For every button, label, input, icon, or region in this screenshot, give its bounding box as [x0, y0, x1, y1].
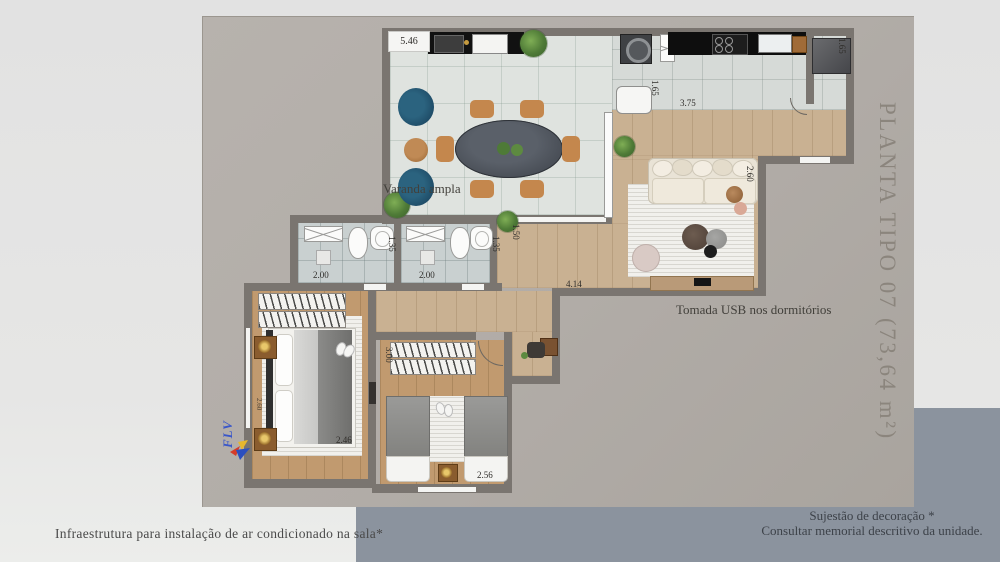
plant-icon — [614, 136, 635, 157]
balcony-grill — [434, 35, 464, 53]
lamp-icon — [258, 432, 271, 445]
bedroom1-wardrobe-row — [258, 293, 346, 310]
sofa-cushion — [652, 178, 704, 204]
side-table-small — [726, 186, 743, 203]
wall-hall-bottom — [504, 376, 560, 384]
dining-chair — [436, 136, 454, 162]
dim-sala-length: 4.14 — [566, 280, 582, 289]
footnote-right: Sujestão de decoração * Consultar memori… — [752, 508, 992, 538]
living-balcony-glass-door — [604, 112, 613, 218]
dim-geladeira: 1.65 — [837, 38, 846, 54]
wall-bath-left — [290, 215, 298, 290]
bedroom2-wardrobe-row — [390, 342, 476, 358]
living-door — [800, 157, 830, 163]
footnote-left: Infraestrutura para instalação de ar con… — [55, 526, 383, 542]
kitchen-cabinet-small — [792, 36, 807, 53]
toilet-1 — [348, 227, 368, 259]
bath1-door — [364, 284, 386, 290]
dining-chair — [520, 100, 544, 118]
hall-chair — [527, 342, 545, 358]
fly-bird-icon — [228, 436, 254, 462]
bedroom2-wardrobe-row — [390, 359, 476, 375]
wall-bath-top — [290, 215, 390, 223]
floorplan-marketing-image: { "title": "PLANTA TIPO 07 (73,64 m²)", … — [0, 0, 1000, 562]
single-bed-2 — [464, 396, 508, 458]
footnote-right-line1: Sujestão de decoração * — [752, 508, 992, 523]
table-plant-icon — [511, 144, 523, 156]
dim-hall: 1.50 — [511, 224, 520, 240]
dim-servico: 1.65 — [650, 80, 659, 96]
dim-banheiro1-width: 2.00 — [313, 271, 329, 280]
burner-icon — [725, 45, 733, 53]
dim-sala-depth: 2.60 — [745, 166, 754, 182]
wall-bedroom2-top — [372, 332, 476, 340]
lamp-icon — [441, 467, 452, 478]
dim-cozinha: 3.75 — [680, 99, 696, 108]
label-usb: Tomada USB nos dormitórios — [676, 302, 831, 318]
fly-watermark: FLV — [220, 406, 256, 462]
dim-dorm2-width: 2.56 — [477, 471, 493, 480]
bath1-drain — [316, 250, 331, 265]
wall-bath-right — [490, 215, 497, 291]
dim-varanda-width: 5.46 — [388, 31, 430, 52]
laundry-tub — [616, 86, 652, 114]
plan-title: PLANTA TIPO 07 (73,64 m²) — [856, 78, 900, 464]
dim-label: 5.46 — [400, 36, 418, 47]
footnote-right-line2: Consultar memorial descritivo da unidade… — [752, 523, 992, 538]
plant-icon — [520, 30, 547, 57]
kitchen-sink — [758, 34, 792, 53]
burner-icon — [715, 45, 723, 53]
lamp-icon — [258, 340, 271, 353]
hall-floor — [376, 291, 552, 332]
single-bed-1 — [386, 396, 430, 458]
wall-living-right — [758, 156, 766, 296]
balcony-sink — [472, 34, 508, 54]
bath2-door — [462, 284, 484, 290]
pillow — [275, 334, 293, 386]
burner-icon — [725, 37, 733, 45]
pouf — [632, 244, 660, 272]
washbasin-2 — [470, 226, 493, 250]
wall-bath-divider — [394, 215, 401, 291]
hall-plant-icon — [521, 352, 528, 359]
single-bed-1-foot — [386, 456, 430, 482]
bath2-drain — [420, 250, 435, 265]
wall-bedroom1-bottom — [244, 479, 376, 488]
toilet-2 — [450, 227, 470, 259]
pillow — [275, 390, 293, 442]
dining-chair — [470, 100, 494, 118]
shower-box-2 — [406, 226, 445, 242]
burner-icon — [715, 37, 723, 45]
bedroom1-door-leaf — [369, 382, 376, 404]
living-floor-upper — [612, 110, 846, 156]
table-plant-icon — [497, 142, 510, 155]
dim-dorm1-width: 2.46 — [336, 436, 352, 445]
dim-dorm2-depth: 3.00 — [384, 347, 393, 363]
side-table-round — [404, 138, 428, 162]
bedroom2-window — [418, 487, 476, 492]
faucet-icon — [464, 40, 469, 45]
bedroom1-wardrobe-row — [258, 311, 346, 328]
dim-banheiro2-depth: 1.35 — [491, 236, 500, 252]
dim-banheiro2-width: 2.00 — [419, 271, 435, 280]
dining-chair — [470, 180, 494, 198]
washing-machine-drum-icon — [626, 38, 651, 63]
shower-box-1 — [304, 226, 343, 242]
dining-chair — [520, 180, 544, 198]
wall-hall-right — [552, 288, 560, 384]
coffee-table-black — [704, 245, 717, 258]
dining-chair — [562, 136, 580, 162]
dim-banheiro1-depth: 1.35 — [387, 236, 396, 252]
ottoman-small — [734, 202, 747, 215]
tv-icon — [694, 278, 711, 286]
label-varanda: Varanda ampla — [383, 181, 461, 197]
armchair-blue-1 — [398, 88, 434, 126]
